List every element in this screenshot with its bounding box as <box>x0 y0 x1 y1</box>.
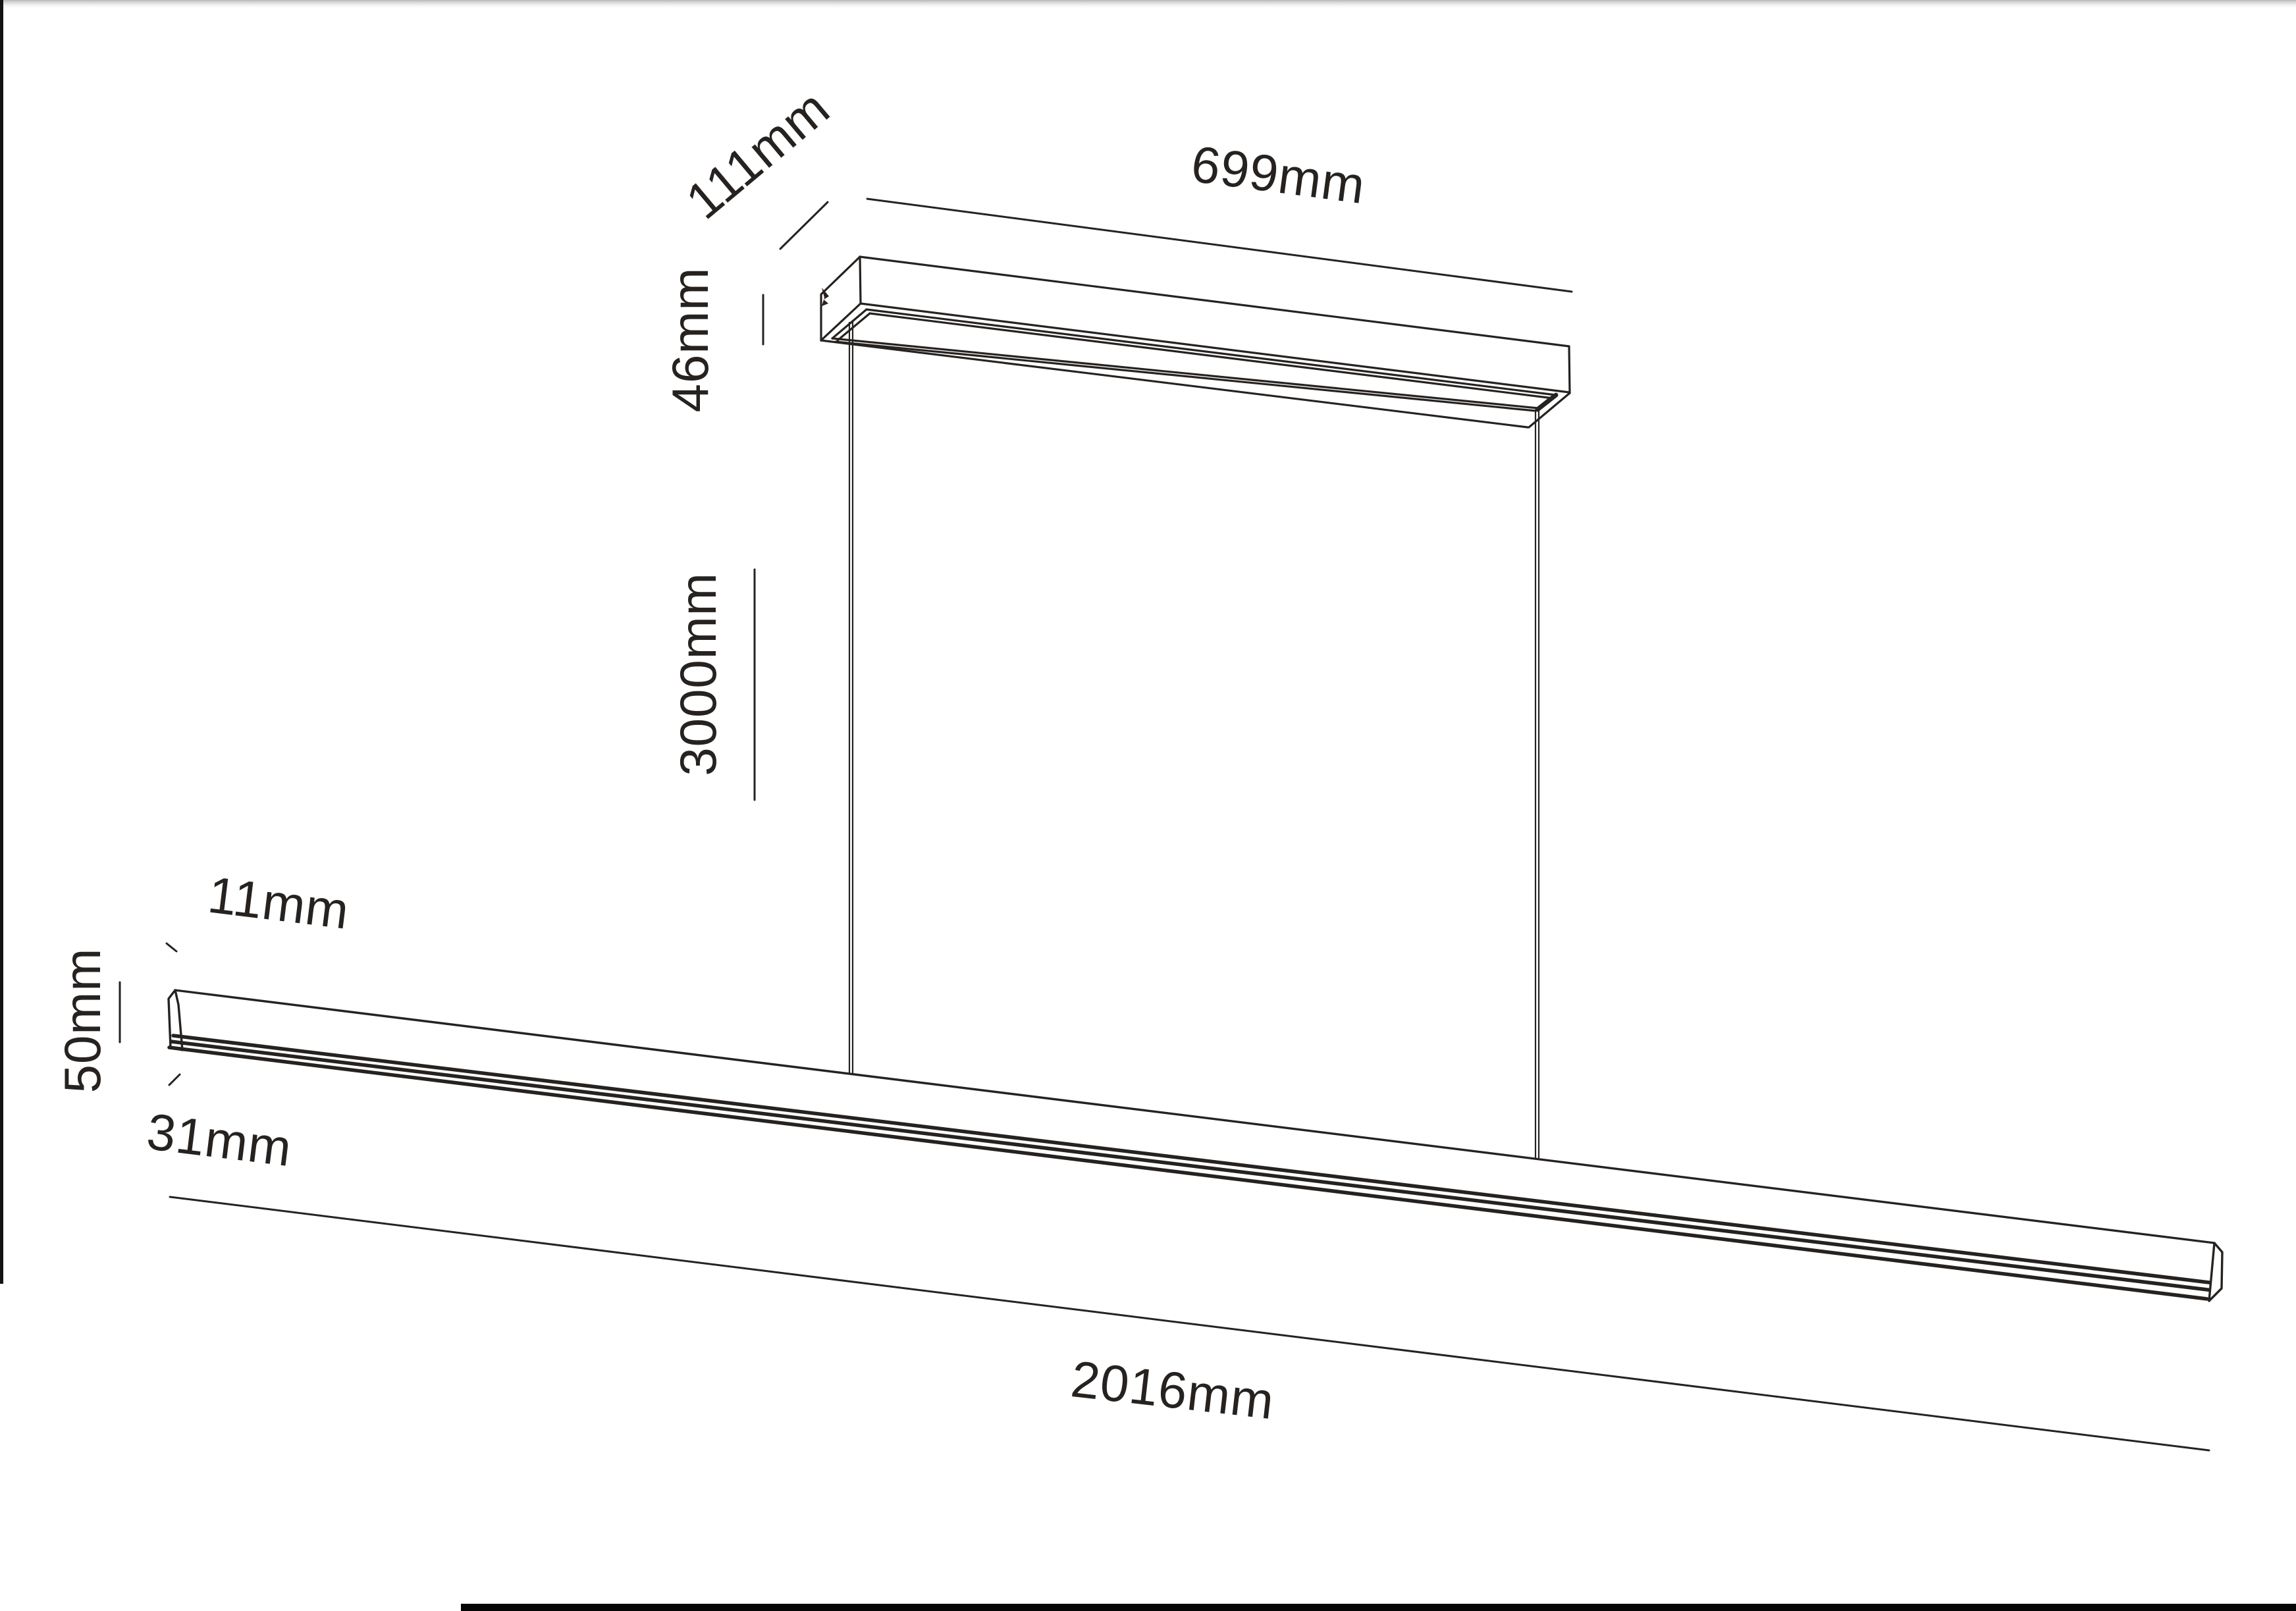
canopy-left-end-bottom-edge <box>821 304 861 340</box>
canopy-right-edge <box>1569 346 1570 393</box>
bar-right-end-cap <box>2209 1243 2222 1301</box>
dim-line-canopy-length <box>867 199 1572 292</box>
dim-tick-bar-bottom-width <box>169 1074 180 1085</box>
dim-label-suspension-length: 3000mm <box>669 572 727 776</box>
dim-label-bar-bottom-width: 31mm <box>144 1102 295 1177</box>
bar-top-edge <box>175 990 2214 1243</box>
canopy-back-bottom-edge <box>821 340 1528 427</box>
bar-bottom-lip-line-3 <box>169 1047 2207 1299</box>
dim-label-bar-top-width: 11mm <box>205 865 352 940</box>
dim-tick-bar-top-width <box>167 943 176 951</box>
top-shadow-edge <box>0 0 2296 9</box>
bar-bottom-lip-line-2 <box>171 1042 2213 1290</box>
page: 111mm 699mm 46mm 3000mm 11mm 50mm 31mm 2… <box>0 0 2296 1611</box>
dim-line-canopy-depth <box>780 202 828 249</box>
bar-bottom-lip-line-1 <box>173 1036 2209 1282</box>
canopy-top-edge <box>860 257 1569 346</box>
canopy-tray-left-end-inner <box>838 313 870 340</box>
dimension-drawing: 111mm 699mm 46mm 3000mm 11mm 50mm 31mm 2… <box>0 0 2296 1611</box>
dim-label-bar-length: 2016mm <box>1068 1350 1277 1430</box>
left-page-border <box>0 0 3 1284</box>
dim-label-canopy-height: 46mm <box>661 267 719 413</box>
canopy-front-left-edge <box>860 257 861 304</box>
bottom-page-bar <box>461 1604 2296 1611</box>
dimension-lines <box>120 199 2209 1450</box>
dimension-labels: 111mm 699mm 46mm 3000mm 11mm 50mm 31mm 2… <box>53 78 1369 1430</box>
dim-label-canopy-depth: 111mm <box>675 78 840 230</box>
suspension-wires <box>849 322 1539 1158</box>
light-bar <box>169 990 2222 1301</box>
dim-label-bar-height: 50mm <box>53 948 111 1094</box>
dim-label-canopy-length: 699mm <box>1188 134 1368 215</box>
canopy <box>821 257 1570 427</box>
